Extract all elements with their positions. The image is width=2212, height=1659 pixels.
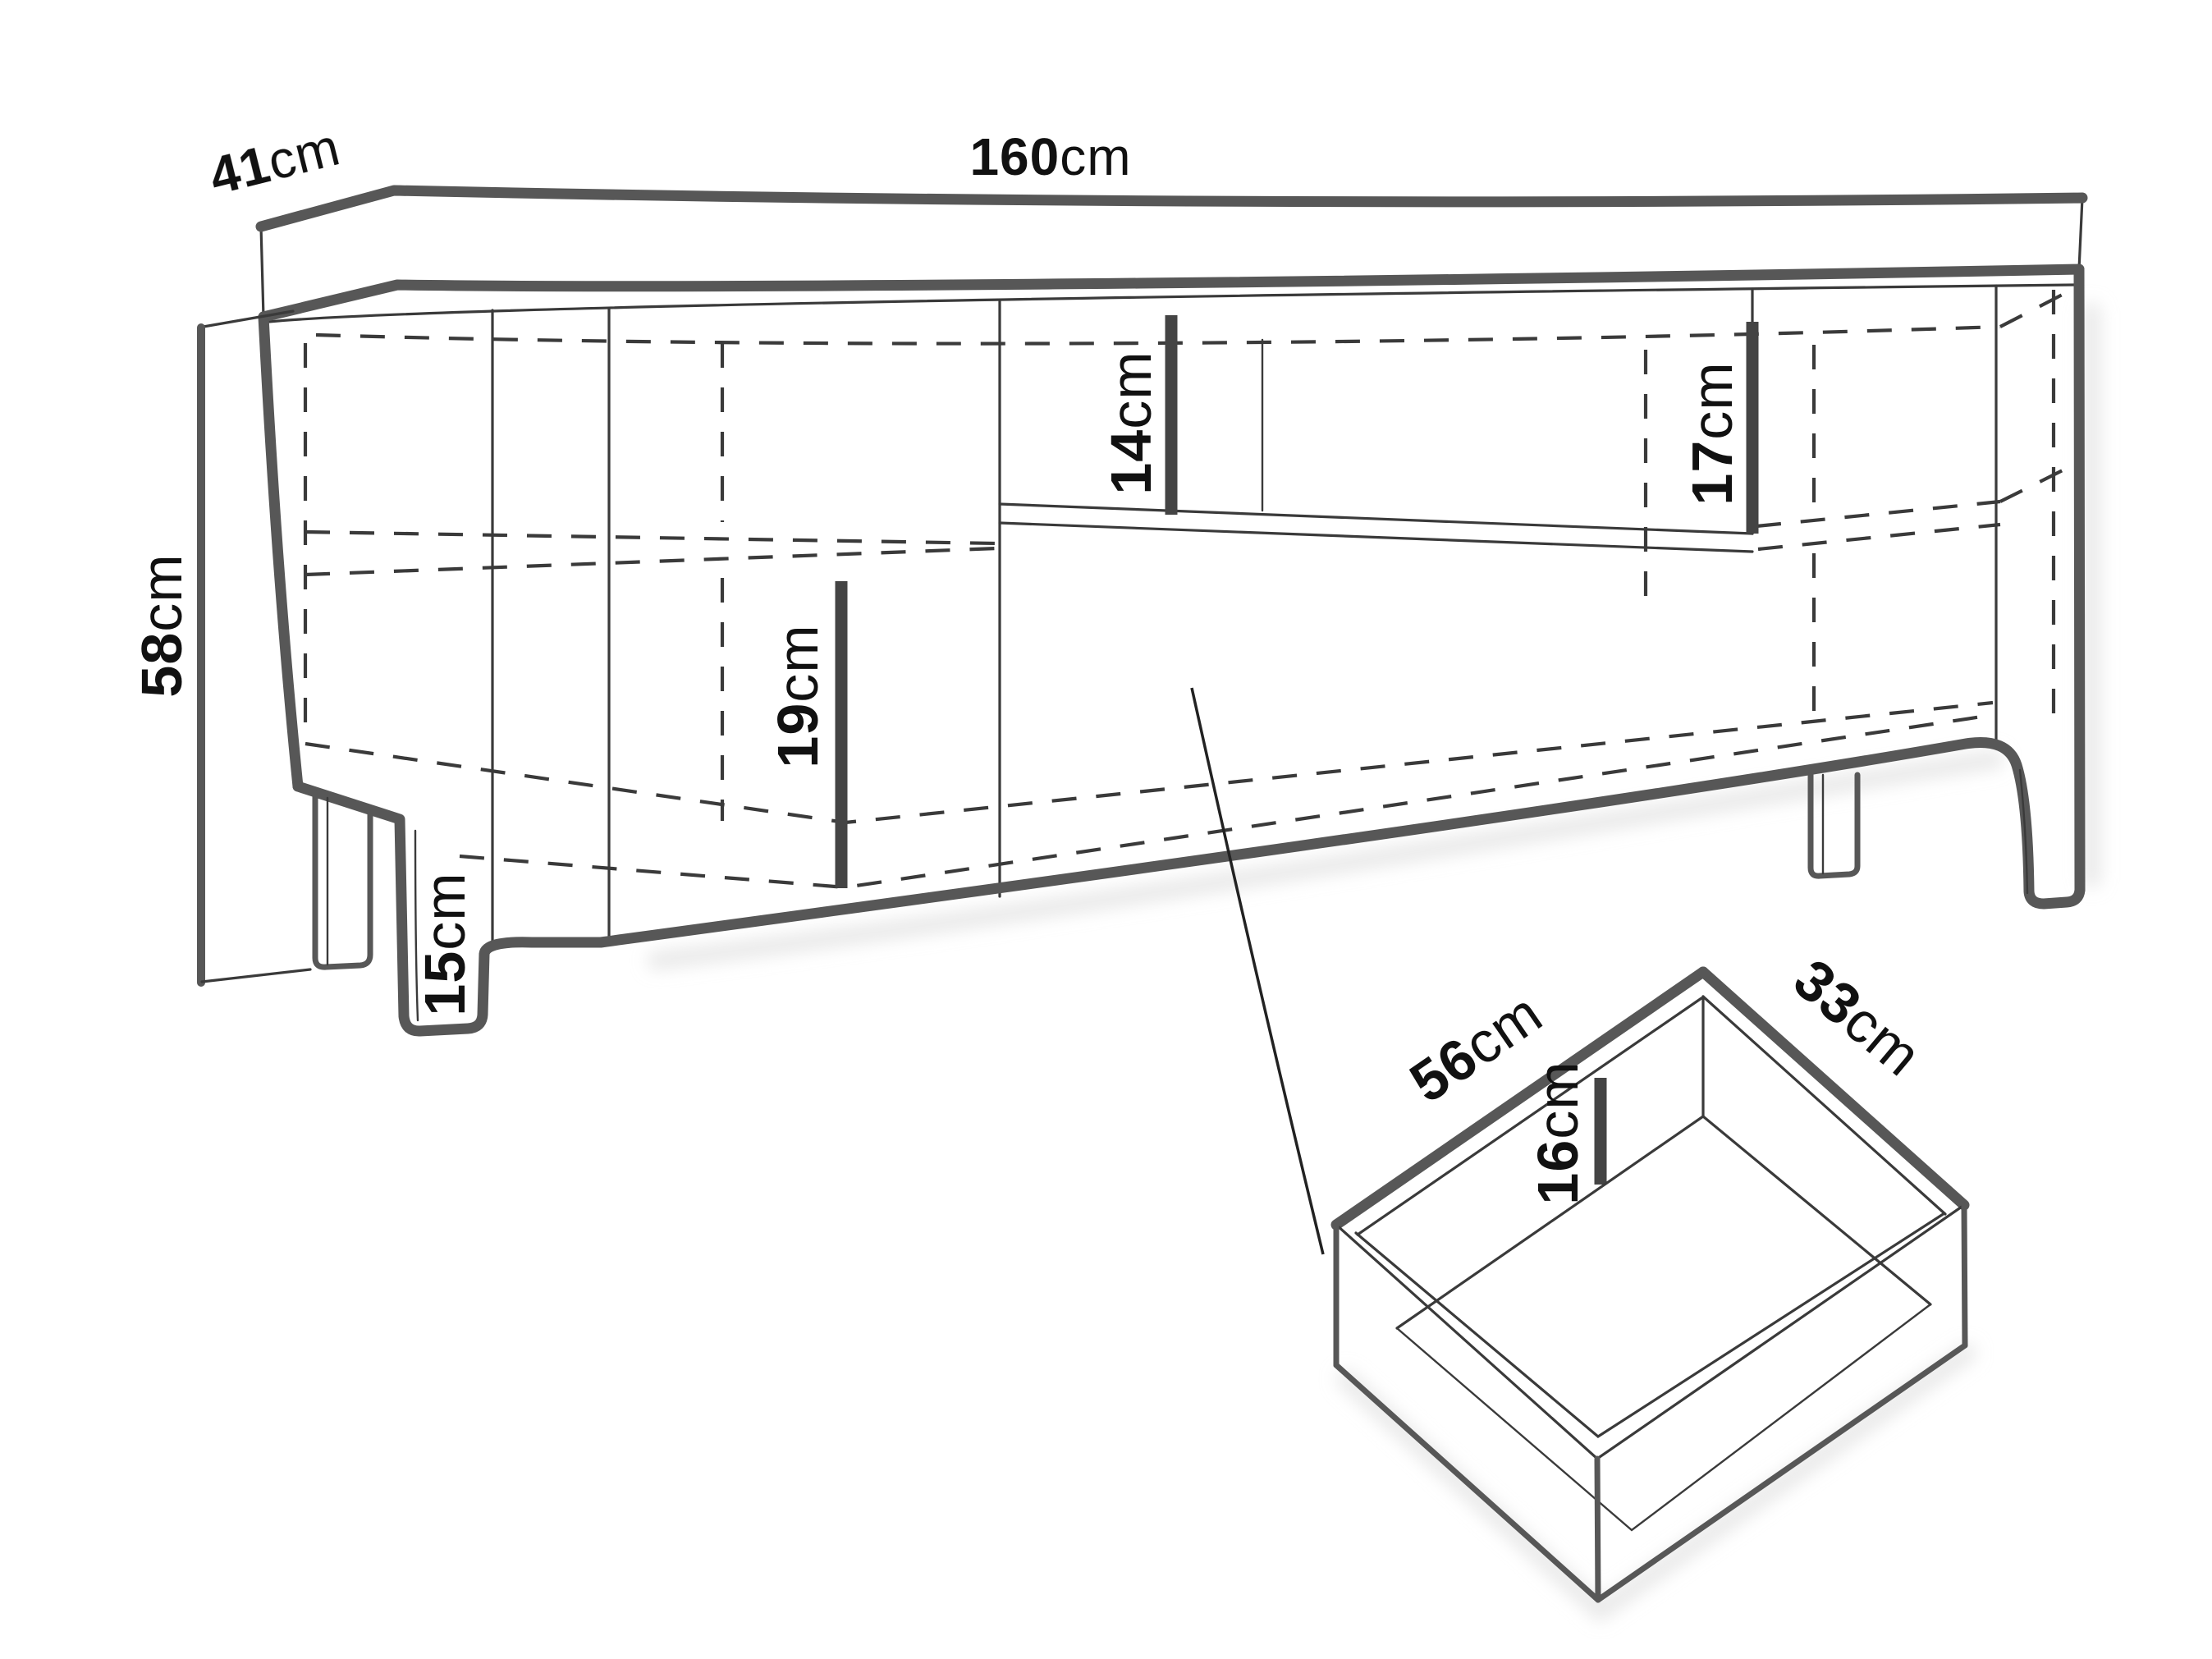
- plane-top-edge: [199, 311, 293, 328]
- dim-shelf-compartment-value: 19: [766, 703, 830, 768]
- dim-drawer-height-value: 16: [1526, 1139, 1590, 1205]
- top-panel-left-cap: [261, 227, 263, 317]
- dim-width-value: 160: [969, 127, 1060, 186]
- dim-niche-left-unit: cm: [1099, 351, 1163, 428]
- drawer-right-corner-vertical: [1964, 1205, 1965, 1345]
- top-panel-right-cap: [2079, 198, 2082, 269]
- dim-width-unit: cm: [1060, 127, 1131, 186]
- drawer-callout-line: [1192, 688, 1323, 1254]
- dim-shelf-compartment-label: 19cm: [766, 624, 830, 768]
- dashed-right-shelf-front: [1758, 525, 2000, 549]
- dim-leg-height-unit: cm: [413, 872, 477, 950]
- dashed-right-shelf-depth: [2000, 467, 2069, 502]
- drawer-bottom-outline: [1336, 1345, 1965, 1600]
- dim-height-unit: cm: [130, 553, 194, 631]
- dim-width-label: 160cm: [969, 127, 1131, 186]
- dim-niche-right-unit: cm: [1680, 361, 1744, 439]
- dim-leg-height-label: 15cm: [413, 872, 477, 1015]
- dimension-bars: [841, 315, 1752, 1185]
- niche-floor-back: [1000, 504, 1752, 534]
- drawer-front-rim-inner: [1356, 1213, 1944, 1437]
- dim-drawer-height-unit: cm: [1526, 1061, 1590, 1139]
- dim-drawer-height-label: 16cm: [1526, 1061, 1590, 1204]
- dim-leg-height-value: 15: [413, 951, 477, 1016]
- plane-bottom-edge: [202, 969, 310, 982]
- dashed-left-shelf-front: [305, 548, 997, 575]
- back-left-leg: [315, 793, 370, 967]
- dim-height-label: 58cm: [130, 553, 194, 697]
- niche-floor-front: [1000, 523, 1752, 552]
- dim-shelf-compartment-unit: cm: [766, 624, 830, 702]
- furniture-dimension-diagram: 160cm 41cm 58cm 14cm 17cm 19cm 15cm 56cm…: [0, 0, 2212, 1659]
- dim-niche-right-label: 17cm: [1680, 361, 1744, 505]
- diagram-canvas: 160cm 41cm 58cm 14cm 17cm 19cm 15cm 56cm…: [0, 0, 2212, 1659]
- drawer-near-corner-vertical: [1597, 1459, 1598, 1600]
- dim-depth-label: 41cm: [204, 117, 346, 206]
- dim-niche-right-value: 17: [1680, 440, 1744, 506]
- dim-depth-unit: cm: [262, 117, 346, 191]
- top-panel-back-edge: [261, 190, 2082, 227]
- dim-height-value: 58: [130, 632, 194, 698]
- dashed-right-shelf-back: [1756, 502, 2000, 526]
- left-front-corner: [263, 317, 298, 786]
- dashed-left-shelf-back: [305, 532, 997, 543]
- dim-niche-left-label: 14cm: [1099, 351, 1163, 494]
- dim-niche-left-value: 14: [1099, 429, 1163, 495]
- shadow-group: [657, 312, 2091, 1611]
- right-front-corner: [2079, 269, 2080, 890]
- height-reference-plane: [199, 311, 310, 983]
- dashed-top-right-depth: [2000, 289, 2073, 327]
